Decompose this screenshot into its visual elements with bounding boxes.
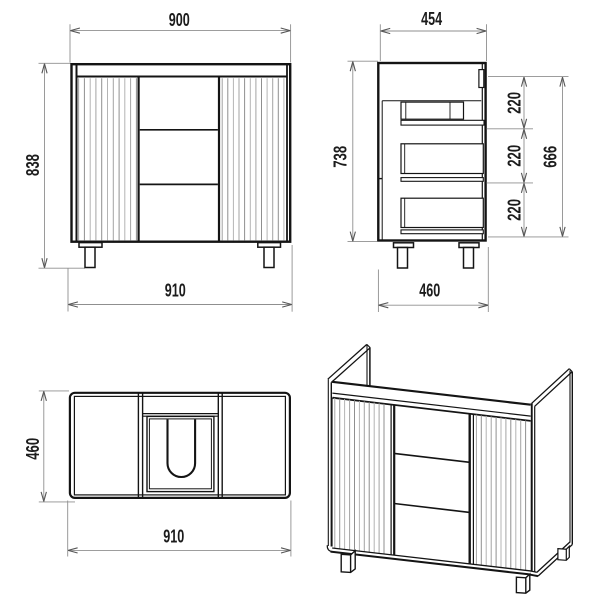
svg-text:738: 738 (330, 146, 351, 168)
svg-text:454: 454 (421, 8, 442, 29)
svg-text:460: 460 (419, 280, 440, 301)
svg-text:910: 910 (163, 525, 184, 546)
svg-text:900: 900 (169, 9, 190, 30)
svg-text:220: 220 (503, 92, 524, 114)
svg-text:910: 910 (165, 279, 186, 300)
svg-text:460: 460 (22, 438, 43, 460)
svg-text:220: 220 (503, 199, 524, 221)
svg-text:220: 220 (503, 145, 524, 167)
svg-text:666: 666 (540, 146, 561, 168)
svg-text:838: 838 (22, 154, 43, 176)
